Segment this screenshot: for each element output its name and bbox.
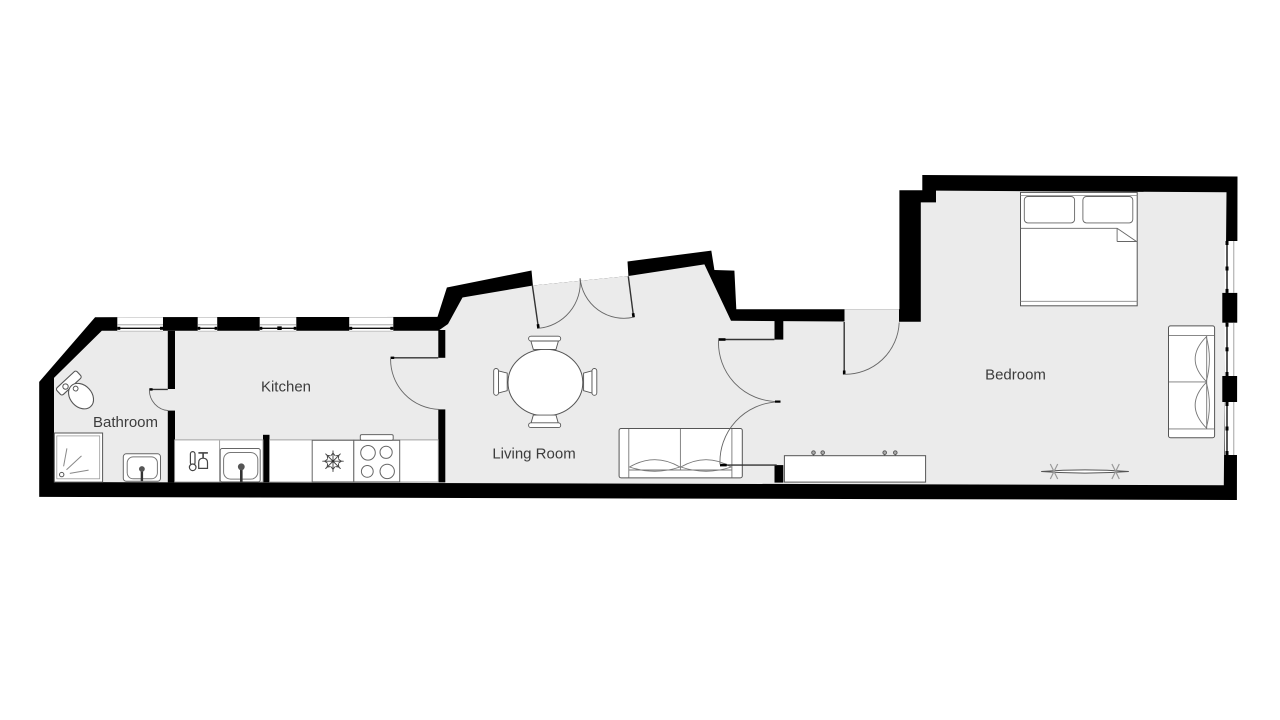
- svg-text:Kitchen: Kitchen: [261, 379, 311, 396]
- svg-text:Bedroom: Bedroom: [985, 367, 1046, 384]
- svg-text:Bathroom: Bathroom: [93, 414, 158, 431]
- svg-text:Living Room: Living Room: [492, 445, 575, 462]
